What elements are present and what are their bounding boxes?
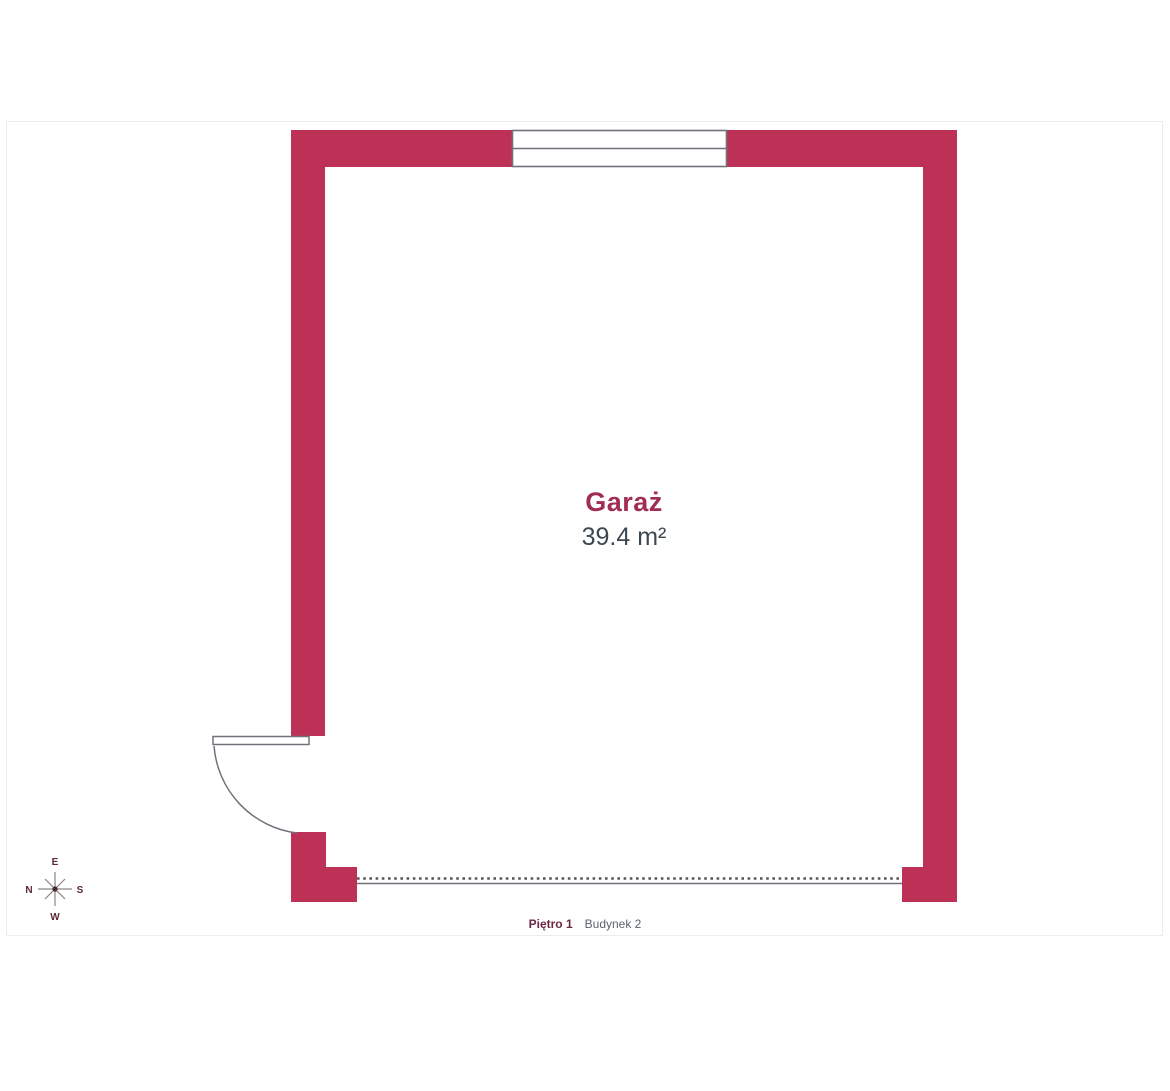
compass-center-dot <box>52 886 57 891</box>
building-label: Budynek 2 <box>585 917 642 931</box>
wall-left-upper <box>291 130 325 736</box>
garage-opening <box>357 879 902 884</box>
wall-left-lower-block <box>291 832 357 902</box>
floor-label: Piętro 1 <box>529 917 573 931</box>
window <box>513 131 727 167</box>
compass-label-top: E <box>52 857 59 868</box>
door <box>213 737 309 834</box>
door-swing-arc <box>214 746 297 833</box>
compass-label-left: N <box>25 885 32 896</box>
footer-caption: Piętro 1Budynek 2 <box>0 916 1170 932</box>
wall-right-lower-extension <box>902 867 923 902</box>
wall-right <box>923 130 957 902</box>
door-leaf <box>213 737 309 745</box>
compass-label-right: S <box>77 885 84 896</box>
walls <box>291 130 957 902</box>
floorplan-page: Garaż 39.4 m² E N S W Piętro 1Budynek 2 <box>0 0 1170 1091</box>
compass-rose-icon: E N S W <box>18 852 94 926</box>
